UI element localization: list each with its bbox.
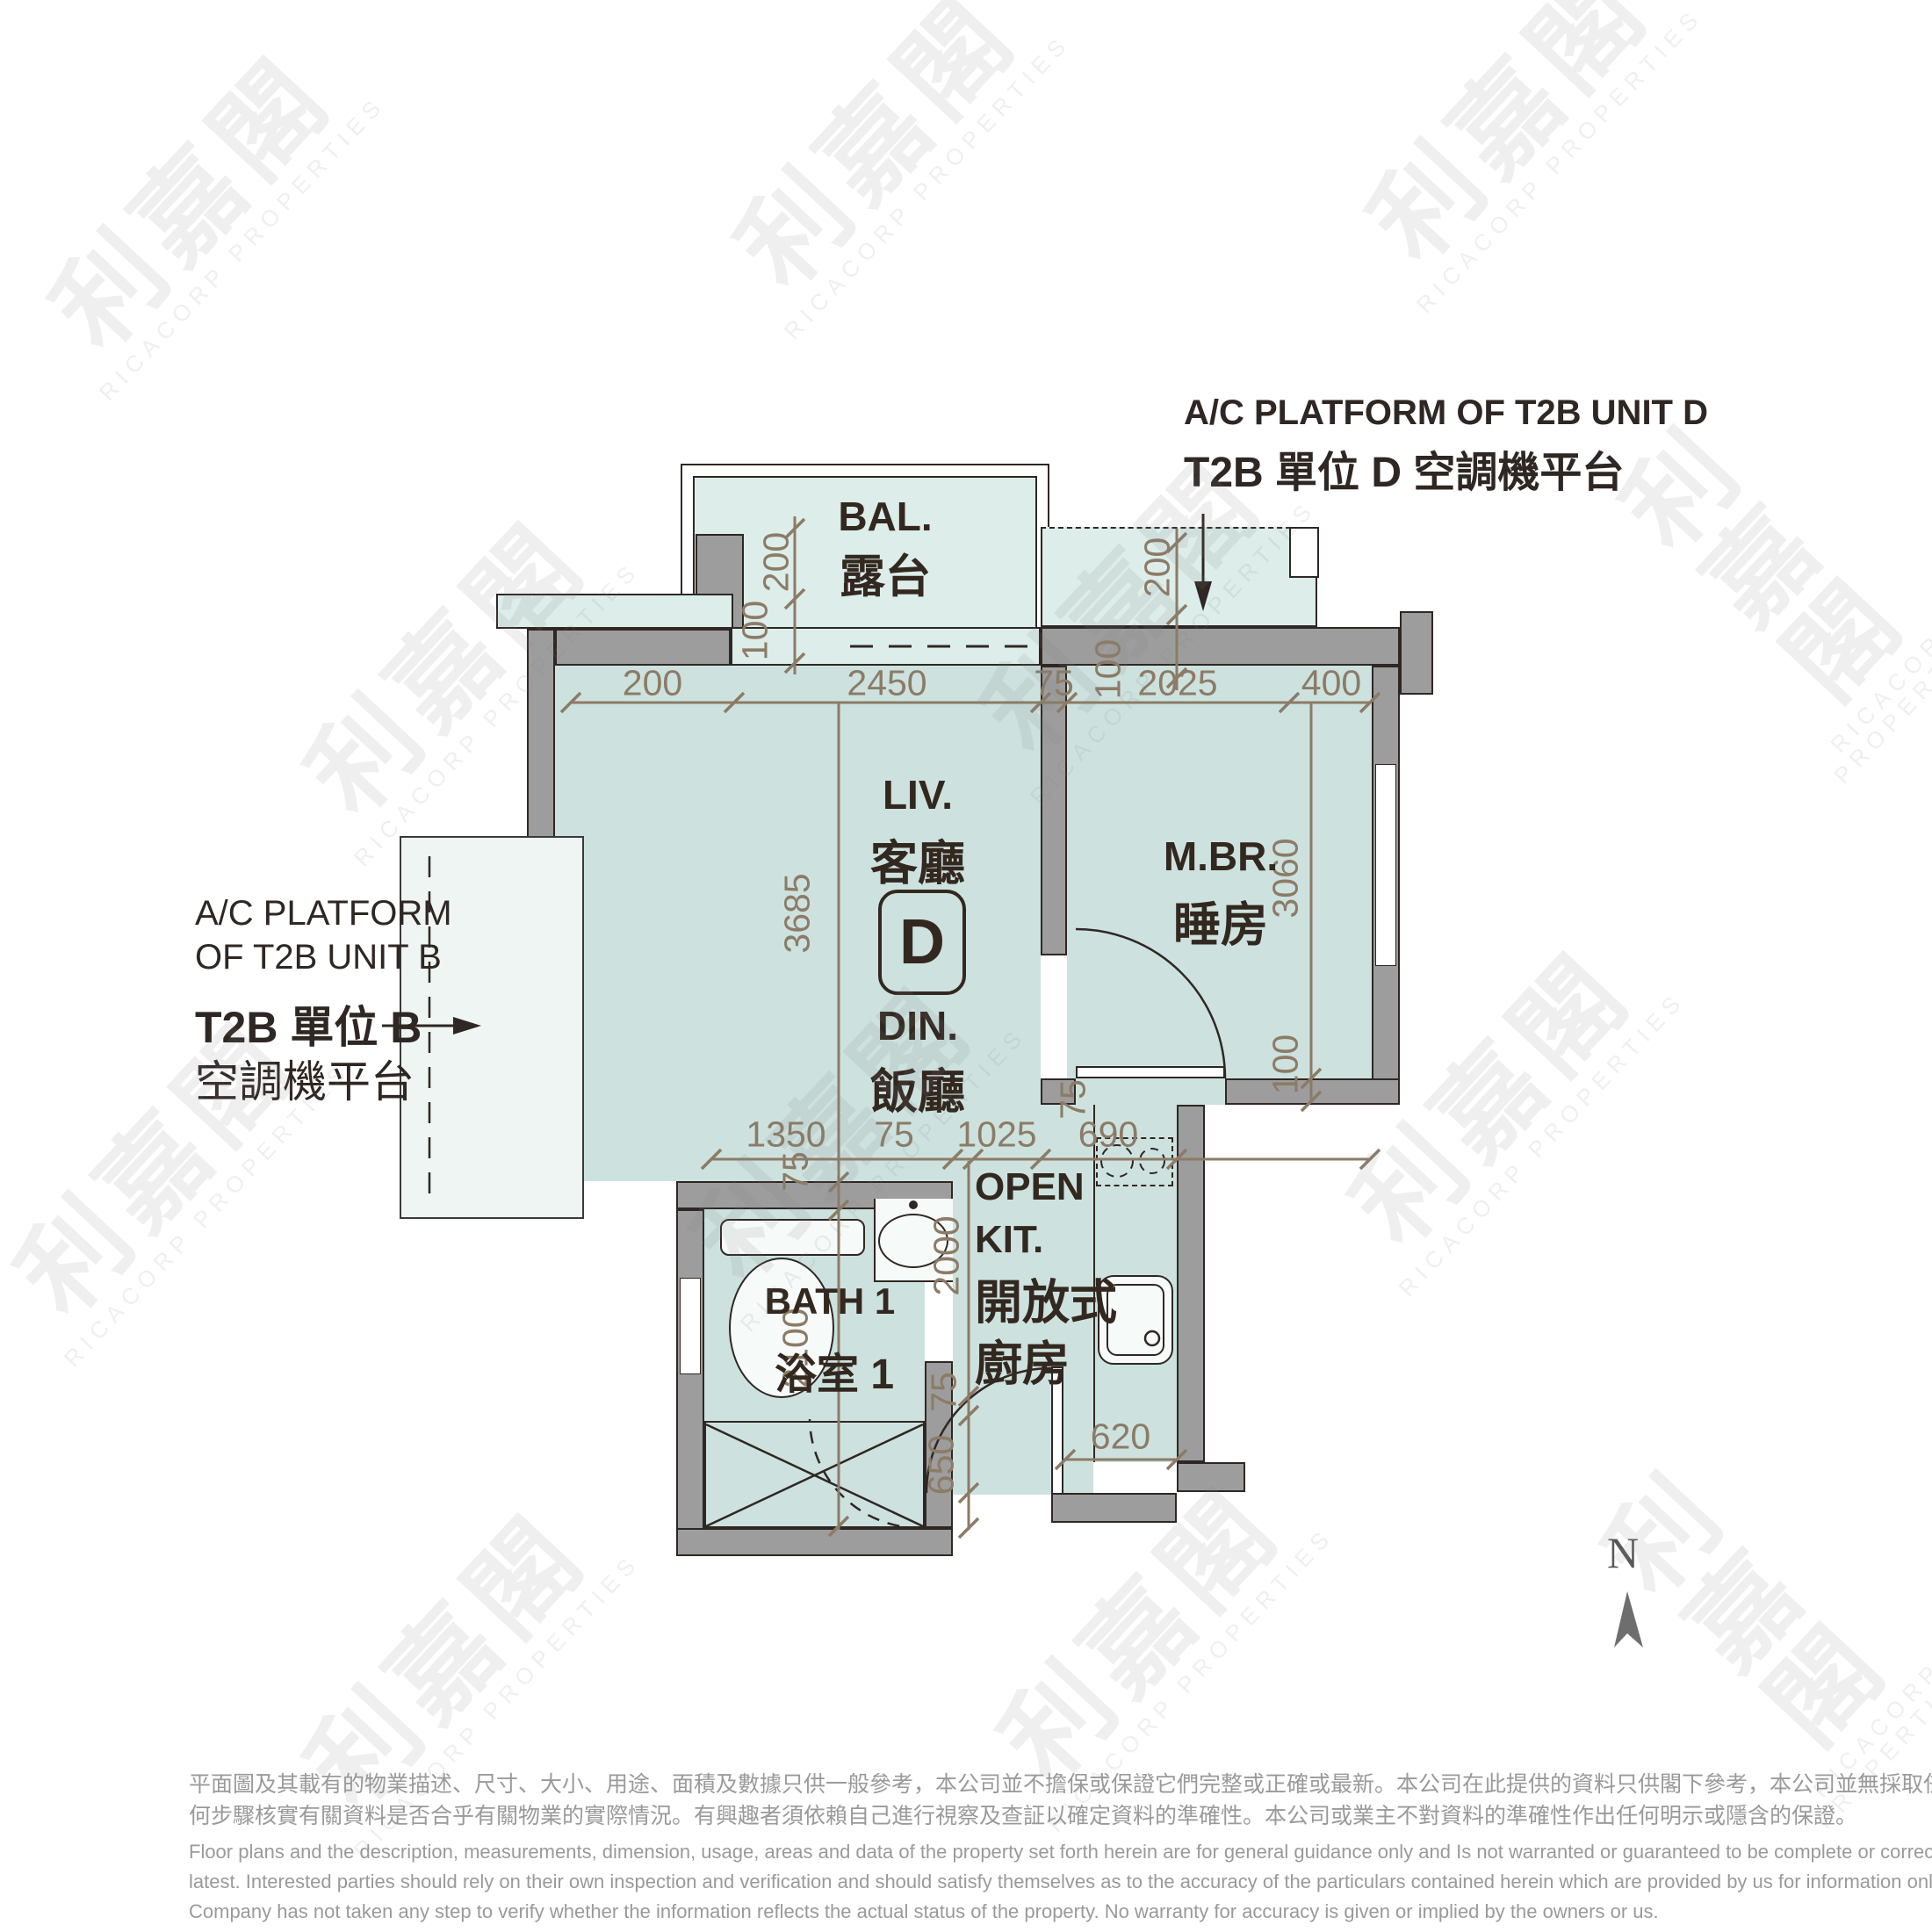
dimension-75: 75 bbox=[1053, 1079, 1094, 1120]
ac-platform-b-label-zh2: 空調機平台 bbox=[195, 1047, 415, 1110]
north-arrow-icon bbox=[1614, 1591, 1643, 1647]
dimension-200: 200 bbox=[1137, 537, 1179, 597]
master-bedroom-label-en: M.BR. bbox=[1164, 833, 1278, 880]
master-bedroom-label-zh: 睡房 bbox=[1173, 886, 1268, 955]
ac-platform-d-label-en: A/C PLATFORM OF T2B UNIT D bbox=[1184, 393, 1708, 433]
dimension-75: 75 bbox=[924, 1372, 965, 1412]
floorplan-page: BAL. 露台 LIV. 客廳 D DIN. 飯廳 M.BR. 睡房 OPEN … bbox=[0, 0, 1932, 1932]
balcony-label-zh: 露台 bbox=[840, 540, 931, 606]
unit-badge-letter: D bbox=[899, 906, 945, 978]
dimension-1350: 1350 bbox=[746, 1114, 825, 1156]
dimension-400: 400 bbox=[1301, 663, 1361, 704]
dimension-200: 200 bbox=[623, 663, 682, 704]
ac-d-arrowhead bbox=[1194, 581, 1212, 611]
dimension-2000: 2000 bbox=[926, 1215, 968, 1295]
dimension-75: 75 bbox=[1034, 663, 1074, 704]
sink-faucet-dot bbox=[909, 1200, 918, 1209]
balcony-label-en: BAL. bbox=[838, 493, 932, 540]
kitchen-sink-drain bbox=[1145, 1331, 1159, 1345]
kitchen-label-zh2: 廚房 bbox=[975, 1325, 1070, 1395]
dimension-200: 200 bbox=[756, 532, 797, 592]
ac-b-arrowhead bbox=[453, 1017, 481, 1034]
bathroom-label-en: BATH 1 bbox=[765, 1280, 896, 1323]
disclaimer-en-line2: latest. Interested parties should rely o… bbox=[189, 1871, 1932, 1893]
washer-dashed-circle bbox=[1140, 1149, 1164, 1173]
living-label-en: LIV. bbox=[883, 771, 953, 818]
disclaimer-zh-line2: 何步驟核實有關資料是否合乎有關物業的實際情況。有興趣者須依賴自己進行視察及查証以… bbox=[189, 1799, 1857, 1830]
dining-label-zh: 飯廳 bbox=[870, 1053, 965, 1122]
kitchen-label-en2: KIT. bbox=[975, 1218, 1043, 1262]
dimension-2450: 2450 bbox=[847, 663, 926, 704]
dimension-3685: 3685 bbox=[777, 873, 818, 953]
dimension-75: 75 bbox=[775, 1151, 817, 1192]
shower-door-dashed-arc bbox=[810, 1419, 920, 1528]
disclaimer-en-line3: Company has not taken any step to verify… bbox=[189, 1900, 1659, 1923]
dimension-100: 100 bbox=[1088, 639, 1129, 699]
dimension-690: 690 bbox=[1078, 1114, 1138, 1156]
dimension-2025: 2025 bbox=[1137, 663, 1217, 704]
disclaimer-en-line1: Floor plans and the description, measure… bbox=[189, 1841, 1932, 1864]
dimension-650: 650 bbox=[921, 1435, 962, 1495]
bathroom-label-zh: 浴室 1 bbox=[775, 1339, 894, 1401]
dimension-620: 620 bbox=[1091, 1417, 1150, 1458]
living-label-zh: 客廳 bbox=[870, 825, 965, 894]
unit-badge: D bbox=[878, 890, 966, 995]
ac-platform-b-label-en2: OF T2B UNIT B bbox=[195, 938, 442, 977]
ac-platform-d-label-zh: T2B 單位 D 空調機平台 bbox=[1184, 437, 1624, 499]
dimension-100: 100 bbox=[735, 601, 776, 660]
dimension-1025: 1025 bbox=[956, 1114, 1036, 1156]
dining-label-en: DIN. bbox=[877, 1002, 958, 1049]
north-label: N bbox=[1607, 1527, 1639, 1578]
dimension-100: 100 bbox=[1265, 1034, 1307, 1094]
disclaimer-zh-line1: 平面圖及其載有的物業描述、尺寸、大小、用途、面積及數據只供一般參考，本公司並不擔… bbox=[189, 1767, 1932, 1799]
kitchen-label-zh1: 開放式 bbox=[975, 1264, 1117, 1333]
ac-platform-b-label-en1: A/C PLATFORM bbox=[195, 894, 452, 934]
kitchen-label-en1: OPEN bbox=[975, 1165, 1085, 1209]
